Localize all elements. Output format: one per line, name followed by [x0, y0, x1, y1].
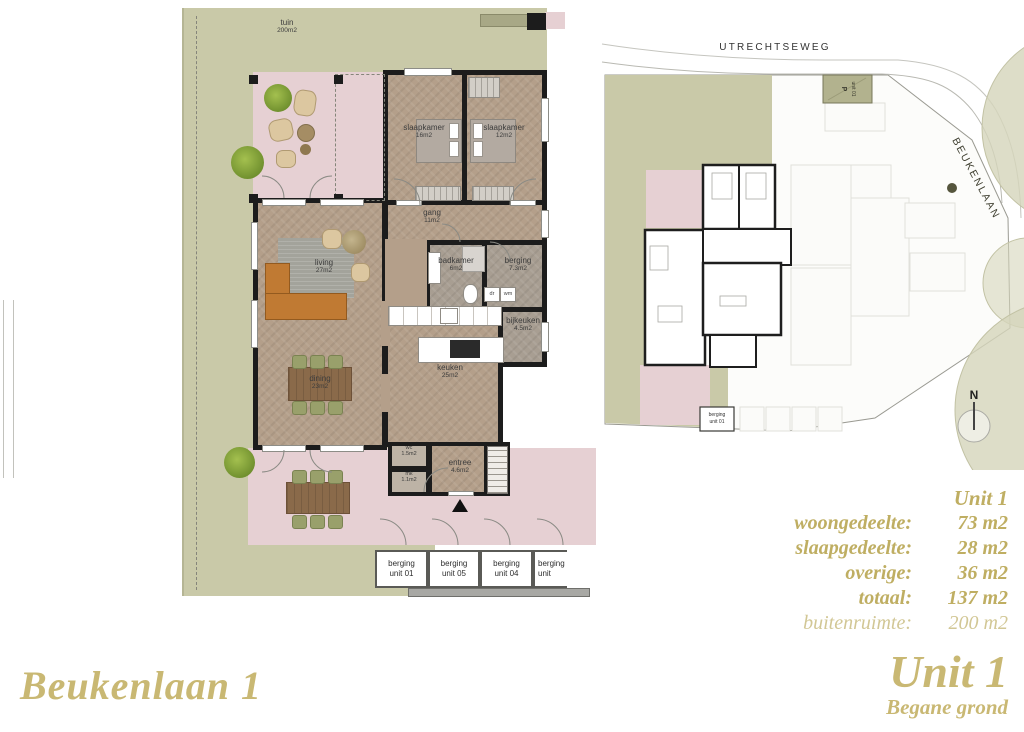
living-opening	[381, 374, 390, 412]
summary-label: slaapgedeelte:	[688, 536, 912, 561]
floorplan-sheet: dr wm berging unit 01 berging unit 05 be…	[0, 0, 1024, 732]
room-label-gang: gang11m2	[423, 208, 441, 225]
dryer: dr	[484, 287, 500, 302]
mini-storage-label: berging	[709, 412, 726, 418]
storage-unit-box: berging unit 05	[428, 550, 480, 588]
summary-label: totaal:	[688, 586, 912, 611]
chair	[310, 355, 325, 369]
lounge-chair	[276, 150, 296, 168]
garden-label: tuin 200m2	[277, 18, 297, 35]
armchair	[351, 263, 370, 282]
storage-unit-label: unit	[538, 569, 551, 578]
unit-title: Unit 1	[886, 648, 1008, 696]
cadastral-dashed-line	[196, 16, 197, 590]
dryer-label: dr	[490, 291, 495, 297]
pillow	[449, 141, 459, 157]
summary-row: slaapgedeelte: 28 m2	[688, 536, 1008, 561]
room-label-dining: dining23m2	[309, 374, 330, 391]
chair	[310, 401, 325, 415]
staircase	[487, 446, 508, 494]
summary-value: 137 m2	[912, 586, 1008, 611]
storage-unit-label: unit 01	[389, 569, 413, 578]
indoor-plant	[342, 230, 366, 254]
hall-passage	[385, 239, 427, 313]
terrace-table	[286, 482, 350, 514]
chair	[328, 515, 343, 529]
chair	[310, 515, 325, 529]
unit-header: Unit 1	[688, 486, 1008, 511]
wardrobe	[468, 77, 500, 98]
summary-value: 73 m2	[912, 511, 1008, 536]
room-label-keuken: keuken25m2	[437, 363, 463, 380]
terrace-corner	[545, 12, 565, 29]
storage-unit-box: berging unit 01	[375, 550, 428, 588]
room-label-badkamer: badkamer6m2	[438, 256, 474, 273]
room-label-slaapkamer-1: slaapkamer16m2	[403, 123, 444, 140]
wardrobe	[415, 186, 461, 201]
side-table	[297, 124, 315, 142]
summary-row: overige: 36 m2	[688, 561, 1008, 586]
tree	[264, 84, 292, 112]
road-edge-lines	[3, 300, 14, 478]
area-summary: Unit 1 woongedeelte: 73 m2 slaapgedeelte…	[688, 486, 1008, 636]
chair	[292, 401, 307, 415]
chair	[328, 355, 343, 369]
wardrobe	[472, 186, 514, 201]
tree	[224, 447, 255, 478]
window	[541, 98, 549, 142]
room-label-entree: entree4.6m2	[449, 458, 472, 475]
storage-unit-label: berging	[441, 559, 468, 568]
window	[251, 222, 258, 270]
parking-spot: P unit 01	[823, 75, 872, 103]
chair	[328, 470, 343, 484]
armchair	[322, 229, 342, 249]
chair	[292, 470, 307, 484]
sofa	[265, 293, 347, 320]
parking-label: unit 01	[850, 81, 856, 96]
door-opening	[320, 199, 364, 206]
summary-value: 36 m2	[912, 561, 1008, 586]
chair	[310, 470, 325, 484]
toilet	[463, 284, 478, 304]
covered-terrace-dashed	[335, 74, 385, 201]
chair	[292, 355, 307, 369]
window	[541, 210, 549, 238]
storage-unit-label: unit 04	[494, 569, 518, 578]
chair	[328, 401, 343, 415]
summary-value: 200 m2	[912, 611, 1008, 636]
room-label-mk: mk1.1m2	[401, 472, 416, 483]
north-label: N	[970, 388, 979, 402]
terrace-post	[249, 75, 258, 84]
side-table	[300, 144, 311, 155]
door-opening	[262, 445, 306, 452]
summary-label: buitenruimte:	[688, 611, 912, 636]
washing-machine: wm	[500, 287, 516, 302]
pillow	[473, 141, 483, 157]
storage-unit-label: berging	[493, 559, 520, 568]
entrance-opening	[448, 491, 474, 496]
pillow	[473, 123, 483, 139]
room-label-berging: berging7.3m2	[505, 256, 532, 273]
unit-title-block: Unit 1 Begane grond	[886, 648, 1008, 719]
tree-dot	[947, 183, 957, 193]
sink	[440, 308, 458, 324]
storage-unit-label: berging	[388, 559, 415, 568]
storage-unit-box: berging unit	[533, 550, 567, 588]
washing-machine-label: wm	[504, 291, 513, 297]
sheet-title: Beukenlaan 1	[20, 662, 262, 709]
street-name-top: UTRECHTSEWEG	[719, 42, 830, 53]
summary-row: buitenruimte: 200 m2	[688, 611, 1008, 636]
sidewalk-bar	[408, 588, 590, 597]
summary-value: 28 m2	[912, 536, 1008, 561]
summary-row: totaal: 137 m2	[688, 586, 1008, 611]
floor-subtitle: Begane grond	[886, 696, 1008, 719]
window	[251, 300, 258, 348]
summary-label: overige:	[688, 561, 912, 586]
tree	[231, 146, 264, 179]
site-plan: berging unit 01 P unit 01 UTRECHTSEWEG B…	[600, 18, 1024, 470]
door-opening	[262, 199, 306, 206]
room-label-bijkeuken: bijkeuken4.5m2	[506, 316, 540, 333]
room-label-wc: wc1.5m2	[401, 446, 416, 457]
pillow	[449, 123, 459, 139]
door-opening	[320, 445, 364, 452]
room-label-slaapkamer-2: slaapkamer12m2	[483, 123, 524, 140]
room-label-living: living27m2	[315, 258, 333, 275]
terrace-post	[334, 75, 343, 84]
storage-unit-label: unit 05	[442, 569, 466, 578]
summary-label: woongedeelte:	[688, 511, 912, 536]
entrance-arrow-icon	[452, 499, 468, 512]
storage-unit-box: berging unit 04	[480, 550, 533, 588]
chair	[292, 515, 307, 529]
storage-unit-label: berging	[538, 559, 565, 568]
window	[541, 322, 549, 352]
parking-label: P	[840, 87, 847, 92]
cooktop	[450, 340, 480, 358]
summary-row: woongedeelte: 73 m2	[688, 511, 1008, 536]
wall-post	[527, 13, 546, 30]
terrace-post	[249, 194, 258, 203]
window	[404, 68, 452, 76]
mini-storage-label: unit 01	[709, 419, 724, 425]
